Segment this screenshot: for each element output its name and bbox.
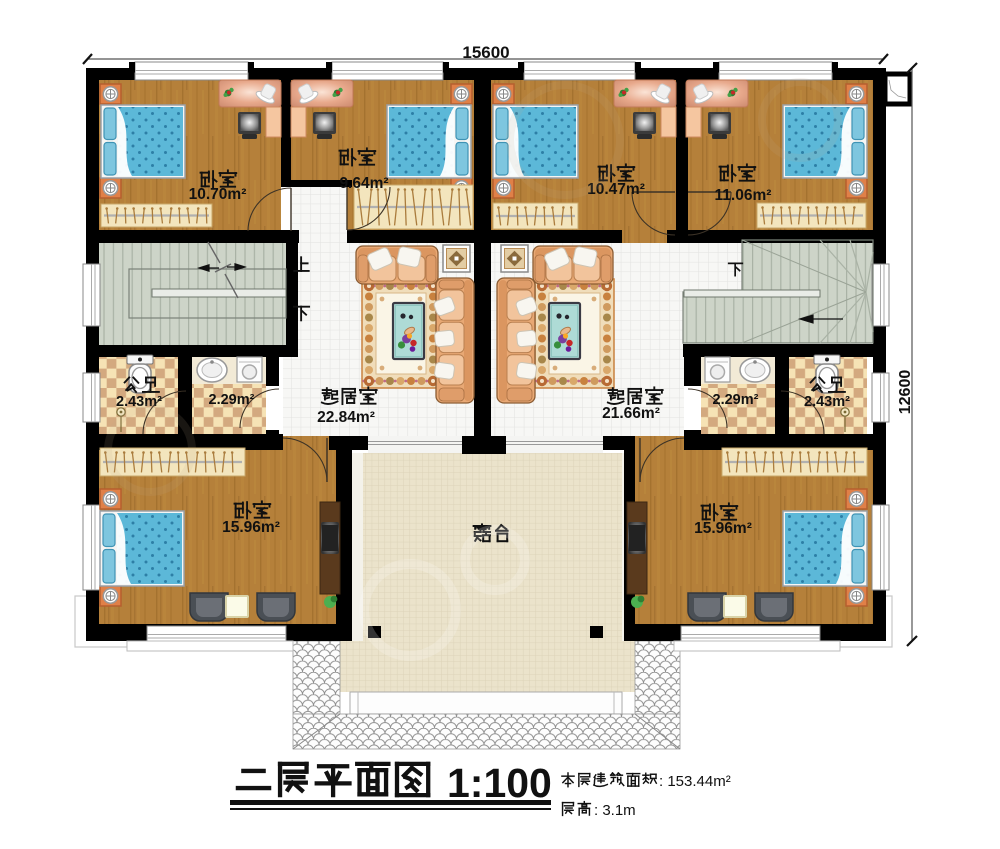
svg-text:2.29m²: 2.29m² xyxy=(209,392,255,408)
svg-text:2.29m²: 2.29m² xyxy=(713,392,759,408)
svg-text:15.96m²: 15.96m² xyxy=(694,520,752,537)
svg-text:21.66m²: 21.66m² xyxy=(602,405,660,422)
svg-text:9.64m²: 9.64m² xyxy=(339,175,388,192)
svg-text:1:100: 1:100 xyxy=(447,760,552,806)
svg-text:15.96m²: 15.96m² xyxy=(222,519,280,536)
svg-text:2.43m²: 2.43m² xyxy=(804,394,850,410)
svg-text:: 153.44m²: : 153.44m² xyxy=(659,773,731,790)
svg-text:: 3.1m: : 3.1m xyxy=(594,802,636,819)
svg-text:10.70m²: 10.70m² xyxy=(189,186,247,203)
svg-text:22.84m²: 22.84m² xyxy=(317,409,375,426)
svg-text:12600: 12600 xyxy=(897,370,914,415)
svg-text:11.06m²: 11.06m² xyxy=(715,187,772,204)
svg-text:15600: 15600 xyxy=(462,43,509,62)
